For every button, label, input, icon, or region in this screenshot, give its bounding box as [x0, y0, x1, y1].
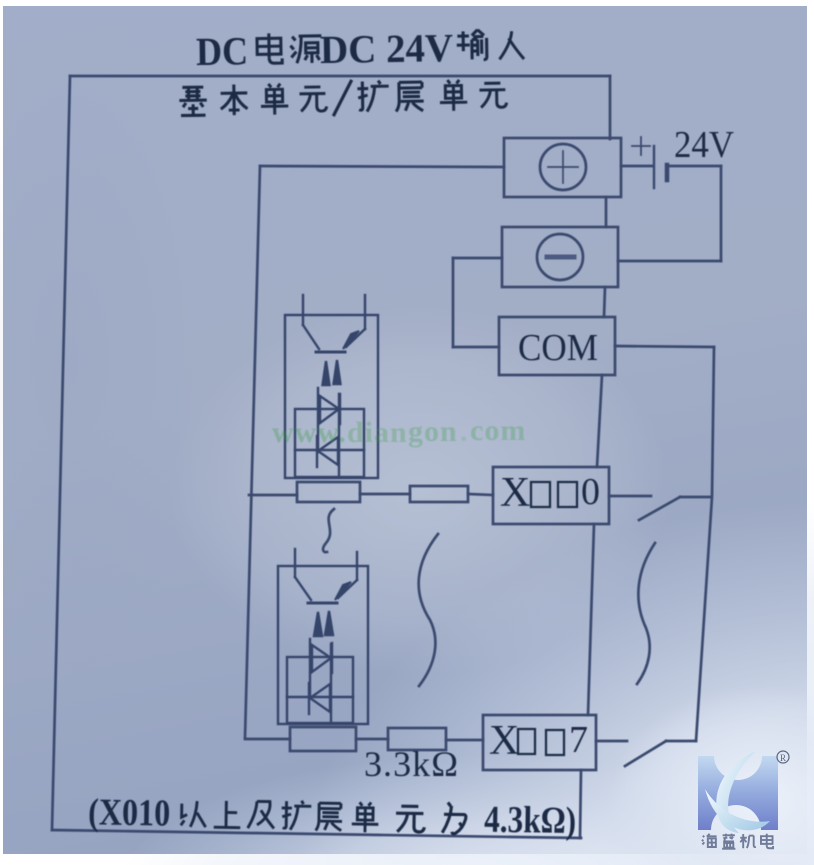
svg-text:(X010: (X010 — [88, 791, 171, 834]
svg-text:DC: DC — [196, 28, 249, 74]
svg-text:3.3kΩ: 3.3kΩ — [364, 744, 458, 784]
svg-text:www.: www. — [272, 416, 347, 449]
svg-text:R: R — [780, 753, 786, 763]
svg-text:X: X — [489, 718, 519, 764]
svg-text:4.3kΩ): 4.3kΩ) — [484, 799, 577, 842]
svg-text:7: 7 — [569, 719, 588, 761]
svg-text:24V: 24V — [674, 124, 735, 166]
svg-text:com: com — [470, 414, 526, 447]
svg-text:dian: dian — [347, 416, 408, 449]
svg-text:DC 24V: DC 24V — [320, 25, 454, 72]
svg-text:0: 0 — [581, 471, 600, 513]
svg-text:.: . — [460, 415, 469, 448]
svg-text:COM: COM — [518, 327, 598, 369]
svg-text:X: X — [500, 470, 530, 516]
svg-text:gon: gon — [408, 415, 458, 448]
